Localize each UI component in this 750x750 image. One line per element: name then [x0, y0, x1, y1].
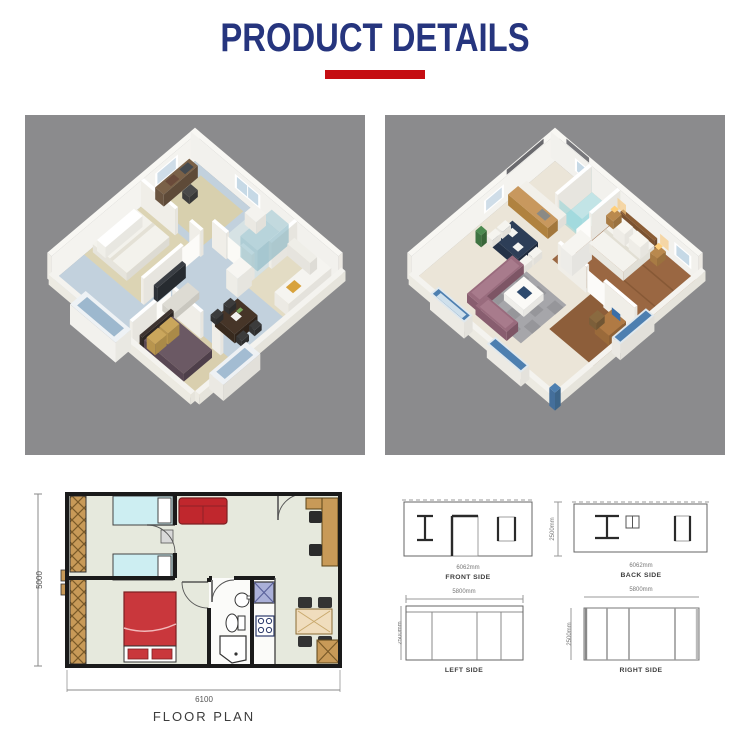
elevation-drawings: 6062mm FRONT SIDE 2500mm 6062mm BACK SID… [398, 480, 743, 725]
back-side-caption: BACK SIDE [621, 572, 662, 579]
product-details-page: PRODUCT DETAILS [0, 0, 750, 750]
right-side-width-dim: 5800mm [629, 587, 652, 593]
render-panel-left [25, 115, 365, 455]
left-side-height-dim: 2500mm [398, 621, 404, 644]
front-side-width-dim: 6062mm [456, 565, 479, 571]
right-side-caption: RIGHT SIDE [620, 667, 663, 674]
front-side-caption: FRONT SIDE [445, 574, 490, 581]
elevation-height-dim-top: 2500mm [550, 517, 556, 540]
back-side-width-dim: 6062mm [629, 563, 652, 569]
floor-plan-svg: 5000 6100 FLOOR PLAN [30, 478, 395, 750]
page-header: PRODUCT DETAILS [0, 14, 750, 79]
floor-plan-width-dim: 6100 [195, 695, 213, 704]
floor-plan-drawing: 5000 6100 FLOOR PLAN [30, 478, 395, 750]
floor-plan-height-dim: 5000 [35, 571, 44, 589]
left-side-width-dim: 5800mm [452, 589, 475, 595]
right-side-height-dim: 2500mm [567, 622, 573, 645]
isometric-render-2 [385, 115, 725, 455]
floor-plan-caption: FLOOR PLAN [153, 709, 255, 724]
render-panel-right [385, 115, 725, 455]
title-underline [325, 70, 425, 79]
left-side-caption: LEFT SIDE [445, 667, 483, 674]
elevations-svg: 6062mm FRONT SIDE 2500mm 6062mm BACK SID… [398, 480, 743, 725]
page-title: PRODUCT DETAILS [68, 14, 683, 62]
isometric-render-1 [25, 115, 365, 455]
